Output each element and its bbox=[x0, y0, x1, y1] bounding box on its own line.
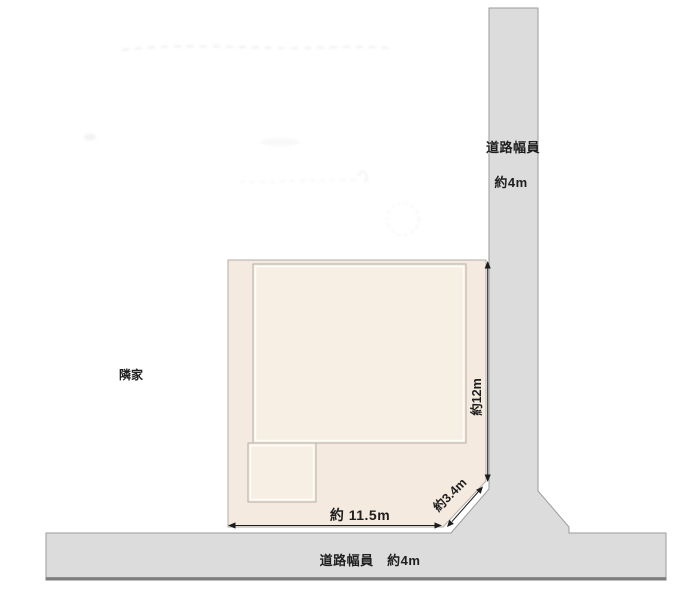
right-road-width-label: 約4m bbox=[494, 175, 527, 190]
building-outline bbox=[253, 264, 466, 443]
dim-width-label: 約 11.5m bbox=[330, 507, 390, 523]
right-road-name-label: 道路幅員 bbox=[486, 140, 540, 155]
building-annex-outline bbox=[248, 443, 316, 502]
dim-depth-label: 約12m bbox=[469, 378, 484, 416]
site-plan-diagram: 道路幅員 約4m 道路幅員 約4m 約 11.5m 約12m 約3.4m 隣家 bbox=[0, 0, 676, 591]
ghost-artifacts bbox=[84, 46, 419, 235]
bottom-road-width-label: 道路幅員 約4m bbox=[320, 553, 421, 568]
neighbor-house-label: 隣家 bbox=[119, 367, 144, 382]
